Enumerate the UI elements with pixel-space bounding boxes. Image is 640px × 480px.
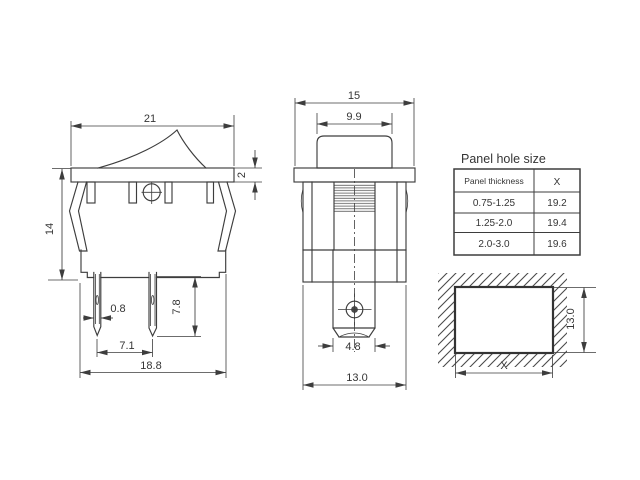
dim-label-terminal-width: 4.8: [345, 341, 360, 353]
dim-label-base-width: 18.8: [140, 360, 161, 372]
dim-label-width: 15: [348, 90, 360, 102]
table-cell: 0.75-1.25: [473, 198, 516, 209]
table-cell: 1.25-2.0: [476, 218, 513, 229]
dim-label-height: 14: [44, 223, 56, 235]
table-header-x: X: [554, 177, 561, 188]
dim-label-pin-width: 0.8: [110, 303, 125, 315]
background: [0, 0, 640, 480]
dim-label-width: 21: [144, 113, 156, 125]
table-cell: 19.6: [547, 239, 567, 250]
table-title: Panel hole size: [461, 152, 546, 166]
dim-label-hole-width: X: [500, 360, 508, 372]
table-cell: 19.2: [547, 198, 567, 209]
dim-label-hole-height: 13.0: [565, 308, 577, 329]
dim-label-pin-length: 7.8: [171, 299, 183, 314]
technical-drawing-rocker-switch: 21 2 14 0.8 7.8 7.1 18.8: [0, 0, 640, 480]
table-header-thickness: Panel thickness: [464, 176, 524, 186]
dim-label-body-width: 13.0: [346, 372, 367, 384]
dim-label-rocker-width: 9.9: [346, 111, 361, 123]
table-cell: 19.4: [547, 218, 567, 229]
dim-label-pin-spacing: 7.1: [119, 340, 134, 352]
panel-hole: [455, 287, 553, 353]
drawing-canvas: 21 2 14 0.8 7.8 7.1 18.8: [0, 0, 640, 480]
table-cell: 2.0-3.0: [478, 239, 510, 250]
dim-label-flange: 2: [236, 172, 248, 178]
